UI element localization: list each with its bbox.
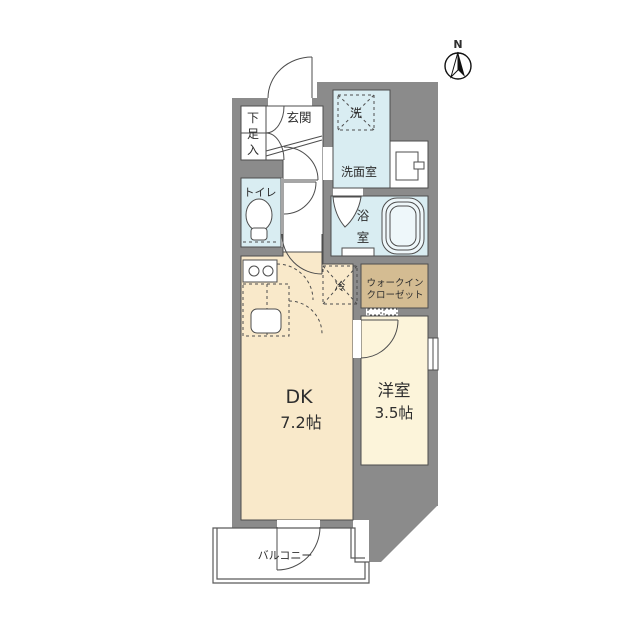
wall-washroom-bath-left: [323, 188, 331, 196]
water-heater-handle: [414, 162, 424, 169]
compass: N: [445, 38, 471, 79]
toilet-label: トイレ: [244, 186, 277, 199]
north-arrow-dark: [458, 52, 465, 77]
north-label: N: [453, 38, 462, 51]
wall-bath-bottom: [323, 256, 438, 264]
wall-bottom-right-diagonal: [353, 465, 438, 562]
wic-label-line2: クローゼット: [366, 289, 423, 301]
kitchen-sink: [251, 309, 281, 333]
wall-wic-bottom-right: [398, 308, 428, 316]
wic-door-panel-2: [384, 309, 397, 315]
balcony-doorway: [277, 520, 320, 528]
wall-below-shoe-storage: [232, 160, 283, 178]
wall-hall-washroom-upper: [323, 82, 333, 147]
fridge-label: 冷: [335, 280, 346, 293]
wall-top-joint: [317, 90, 323, 106]
wall-western-left-top: [353, 316, 361, 320]
balcony-label: バルコニー: [258, 549, 313, 562]
washer-label: 洗: [350, 106, 362, 120]
wic-label-line1: ウォークイン: [366, 278, 423, 289]
genkan-label: 玄関: [286, 110, 311, 125]
shoe-storage-char-1: 下: [247, 111, 259, 125]
western-doorway: [353, 320, 361, 358]
wall-top-right: [317, 82, 438, 90]
washroom-doorway: [323, 147, 333, 180]
bath-char-2: 室: [357, 230, 370, 245]
toilet-bowl: [246, 199, 272, 231]
stove: [243, 260, 277, 282]
bath-char-1: 浴: [357, 208, 370, 223]
wall-block-washroom-right: [390, 90, 428, 141]
shoe-storage-char-3: 入: [247, 143, 259, 157]
wall-western-left: [353, 358, 361, 468]
dk-label: DK: [285, 386, 313, 408]
wic-door-panel-1: [368, 309, 381, 315]
north-arrow-light: [451, 52, 458, 77]
western-label: 洋室: [378, 381, 411, 400]
wall-wic-bottom-left: [353, 308, 366, 316]
wall-top-left: [232, 98, 268, 106]
floor-plan-page: N 玄関 下 足 入 トイレ 洗 洗面室 浴 室 冷 ウォークイン クローゼット…: [0, 0, 640, 640]
bath-counter: [342, 248, 374, 256]
wall-right: [428, 82, 438, 506]
entry-door-arc: [268, 57, 312, 98]
shoe-storage-char-2: 足: [247, 127, 259, 141]
floor-plan-drawing: N 玄関 下 足 入 トイレ 洗 洗面室 浴 室 冷 ウォークイン クローゼット…: [0, 0, 640, 640]
wall-dk-bottom-left: [232, 520, 277, 528]
dk-size-label: 7.2帖: [280, 413, 321, 432]
wall-washroom-bath-right: [363, 188, 428, 196]
wall-dk-bottom-right: [320, 520, 353, 528]
washroom-label: 洗面室: [341, 164, 377, 179]
wall-toilet-bottom: [232, 247, 283, 256]
toilet-base: [251, 228, 267, 240]
wall-bath-left: [323, 196, 331, 256]
western-size-label: 3.5帖: [375, 404, 414, 422]
